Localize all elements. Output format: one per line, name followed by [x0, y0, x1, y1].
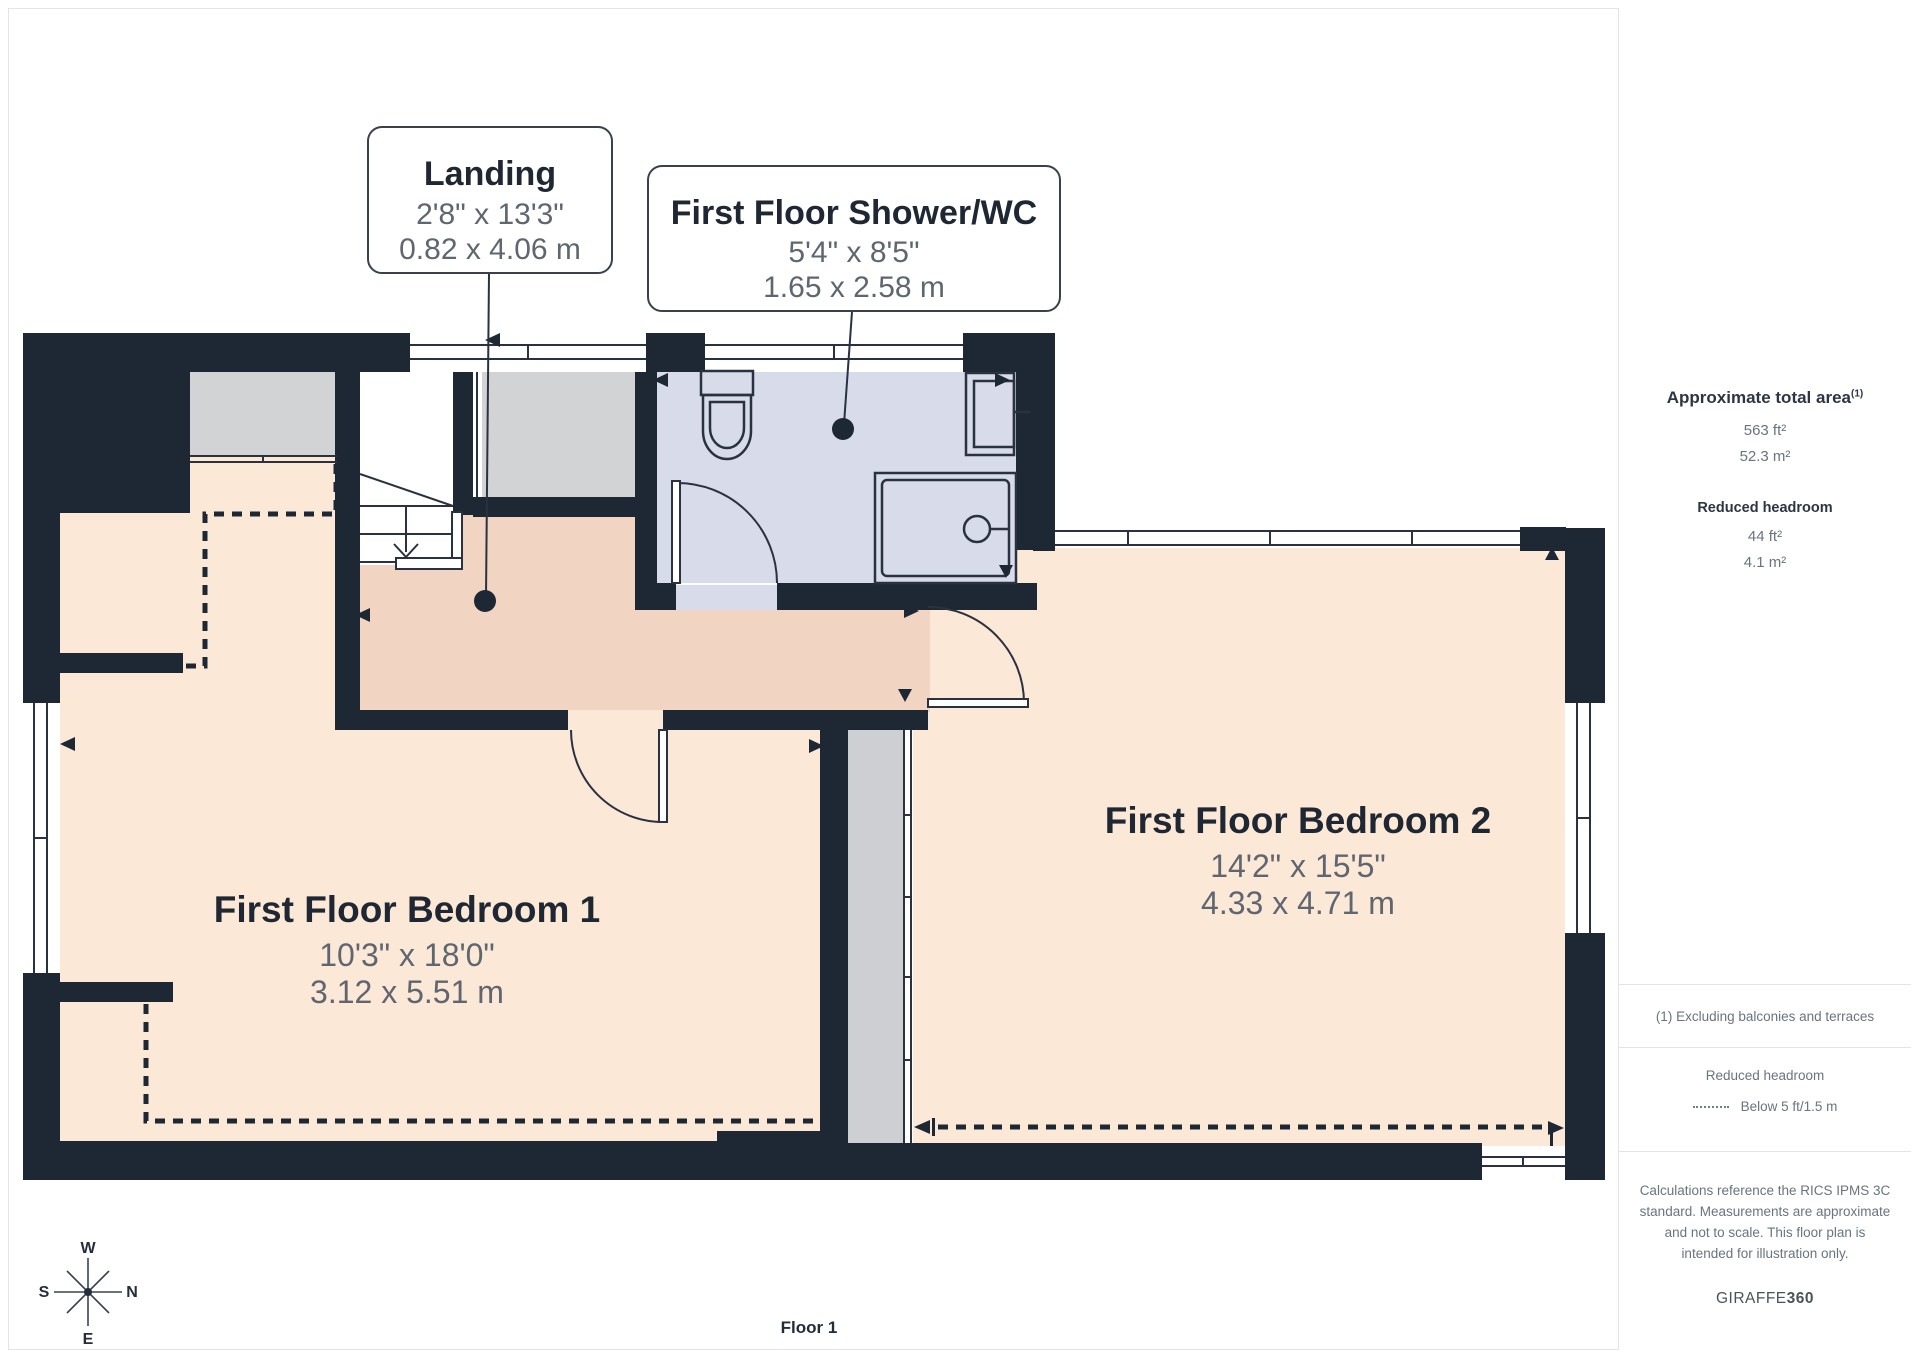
floorplan-page: Landing 2'8" x 13'3" 0.82 x 4.06 m First…	[0, 0, 1920, 1358]
total-area-superscript: (1)	[1851, 388, 1863, 399]
area-summary-panel: Approximate total area(1) 563 ft² 52.3 m…	[1619, 8, 1911, 985]
reduced-headroom-title: Reduced headroom	[1619, 500, 1911, 516]
total-area-m: 52.3 m²	[1619, 444, 1911, 470]
footnote-text: (1) Excluding balconies and terraces	[1656, 1009, 1874, 1024]
total-area-title: Approximate total area(1)	[1619, 388, 1911, 408]
floor-name-label: Floor 1	[0, 1318, 1618, 1338]
disclaimer-text: Calculations reference the RICS IPMS 3C …	[1639, 1180, 1891, 1264]
giraffe360-logo: GIRAFFE360	[1619, 1290, 1911, 1308]
info-sidebar: Approximate total area(1) 563 ft² 52.3 m…	[1618, 8, 1911, 1350]
dotted-line-icon	[1693, 1106, 1729, 1108]
footnote-panel: (1) Excluding balconies and terraces	[1619, 985, 1911, 1048]
legend-value: Below 5 ft/1.5 m	[1741, 1099, 1838, 1114]
total-area-ft: 563 ft²	[1619, 418, 1911, 444]
reduced-headroom-ft: 44 ft²	[1619, 524, 1911, 550]
reduced-headroom-m: 4.1 m²	[1619, 550, 1911, 576]
disclaimer-panel: Calculations reference the RICS IPMS 3C …	[1619, 1152, 1911, 1308]
legend-title: Reduced headroom	[1619, 1068, 1911, 1083]
legend-panel: Reduced headroom Below 5 ft/1.5 m	[1619, 1048, 1911, 1152]
